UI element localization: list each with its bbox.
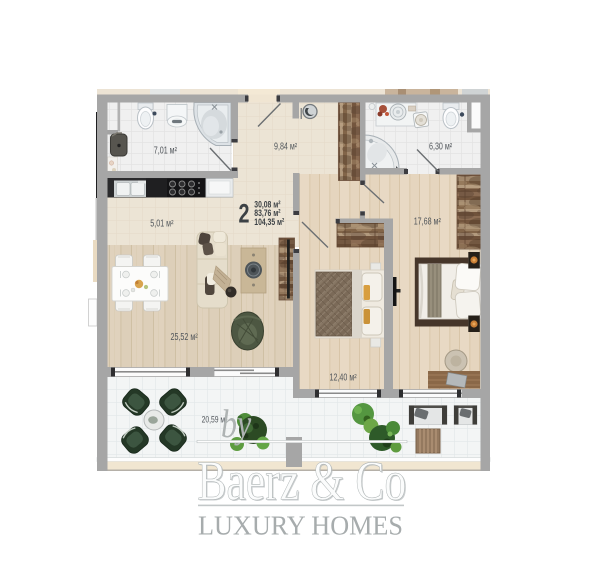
svg-text:5,01 м²: 5,01 м² — [150, 217, 173, 228]
svg-text:2: 2 — [239, 200, 250, 230]
svg-text:12,40 м²: 12,40 м² — [330, 371, 357, 382]
svg-text:LUXURY HOMES: LUXURY HOMES — [198, 511, 403, 541]
svg-text:Baerz & Co: Baerz & Co — [197, 449, 406, 512]
svg-text:6,30 м²: 6,30 м² — [429, 140, 452, 151]
svg-text:25,52 м²: 25,52 м² — [171, 331, 198, 342]
svg-text:by: by — [221, 402, 252, 446]
svg-text:104,35 м²: 104,35 м² — [254, 216, 284, 228]
svg-text:7,01 м²: 7,01 м² — [154, 144, 177, 155]
svg-text:9,84 м²: 9,84 м² — [274, 140, 297, 151]
svg-text:17,68 м²: 17,68 м² — [414, 215, 441, 226]
